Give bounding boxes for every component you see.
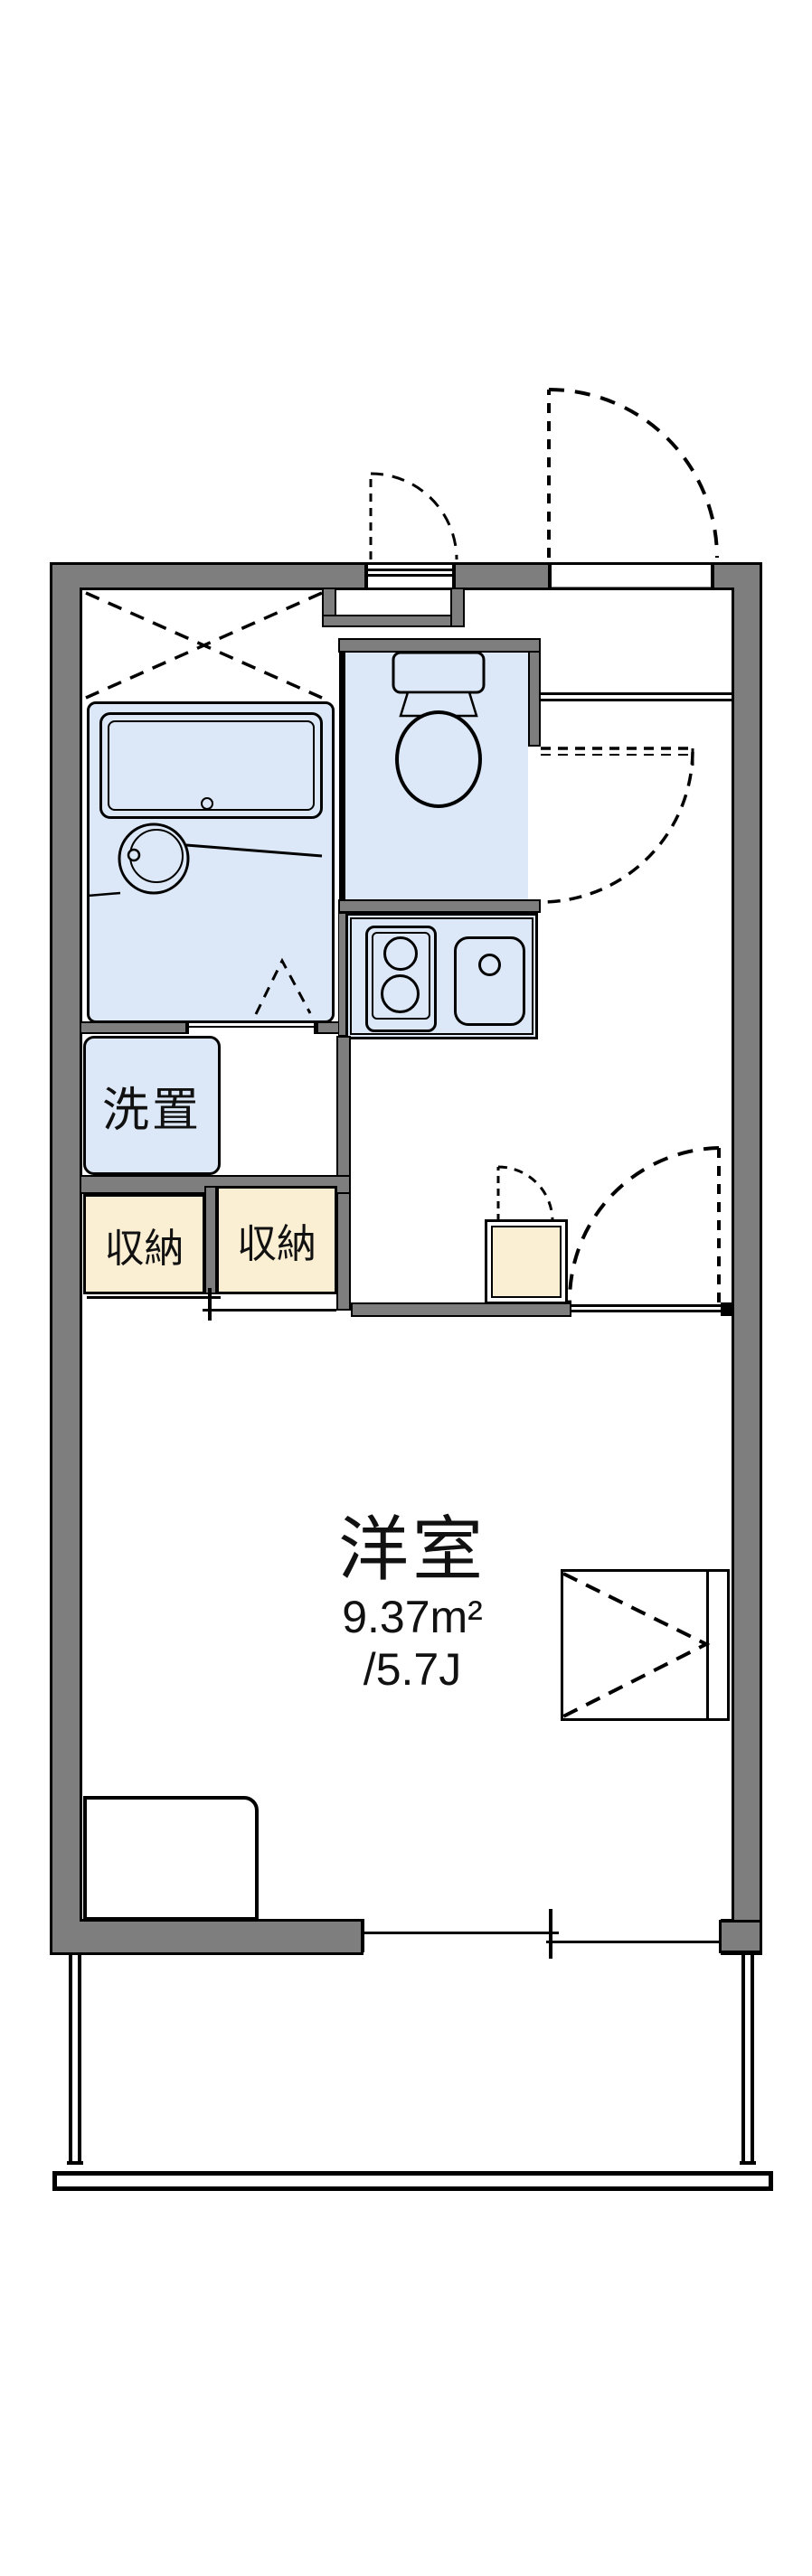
balcony-rail-cap [740,2161,756,2165]
stove-burner [383,936,418,971]
bathtub-drain [201,797,213,810]
balcony-front-rail [52,2171,773,2191]
toilet-south-wall [338,899,541,913]
storage-right-label: 収納 [237,1211,316,1269]
closet-sliding-door [203,1309,336,1312]
entrance-jamb [548,565,552,589]
south-window-track [546,1941,721,1943]
bathtub-inner [108,720,315,811]
entrance-jamb [711,565,714,589]
hall-west-wall [336,1036,351,1311]
south-window-track [364,1932,559,1934]
toilet-west-wall [339,651,345,901]
hall-south-wall [351,1302,571,1317]
main-room-label: 洋室 [231,1508,593,1591]
closet-divider-wall [204,1186,217,1294]
bath-south-wall [80,1021,188,1034]
room-door-threshold [571,1304,723,1307]
storage-closet-left: 収納 [83,1194,205,1294]
toilet-east-wall [528,651,541,747]
bath-door-threshold [188,1026,315,1028]
entrance-step-line [541,692,732,695]
bath-door-jamb [185,1021,189,1034]
toilet-north-wall [338,638,541,653]
entrance-doorway-opening [552,565,711,587]
closet-sliding-door [87,1296,221,1299]
kitchen-sink [454,936,525,1026]
bed-counter-block [83,1796,259,1921]
storage-closet-right: 収納 [216,1186,337,1294]
east-bay-divider [706,1569,709,1721]
niche-wall-right [450,588,465,627]
balcony-rail-right [751,1955,754,2163]
toilet-room-floor [345,651,528,901]
balcony-rail-right [741,1955,745,2163]
entrance-step-line [541,699,732,701]
top-window-glass-line [367,574,453,577]
balcony-rail-left [78,1955,81,2163]
closet-door-meet-tick [208,1288,212,1321]
entrance-door-swing [549,390,717,558]
casement-window-swing [371,474,457,559]
south-window-opening [364,1919,721,1955]
top-window-glass-line [367,569,453,571]
room-door-threshold [571,1310,723,1312]
floor-plan: 洗置 収納 収納 洋室 9.37m² /5.7J [0,0,812,2576]
main-room-text: 洋室 9.37m² /5.7J [231,1508,593,1696]
bath-door-jamb [314,1021,317,1034]
storage-left-label: 収納 [105,1216,184,1274]
sink-faucet [478,954,501,976]
washer-place: 洗置 [83,1036,221,1175]
main-room-area-sqm: 9.37m² [231,1591,593,1643]
south-east-corner-wall [719,1920,762,1953]
south-window-jamb [361,1919,364,1952]
balcony-rail-cap [67,2161,83,2165]
stove-burner [381,974,420,1013]
top-window-jamb [364,562,368,589]
south-window-meet-tick [549,1909,552,1959]
kitchen-west-wall [338,913,346,1036]
main-room-area-tatami: /5.7J [231,1643,593,1696]
balcony-rail-left [69,1955,72,2163]
washer-place-label: 洗置 [102,1072,202,1140]
room-door-jamb [721,1302,734,1316]
hall-storage-box-inner [491,1226,562,1298]
top-window-jamb [452,562,456,589]
niche-wall-bottom [322,615,465,627]
